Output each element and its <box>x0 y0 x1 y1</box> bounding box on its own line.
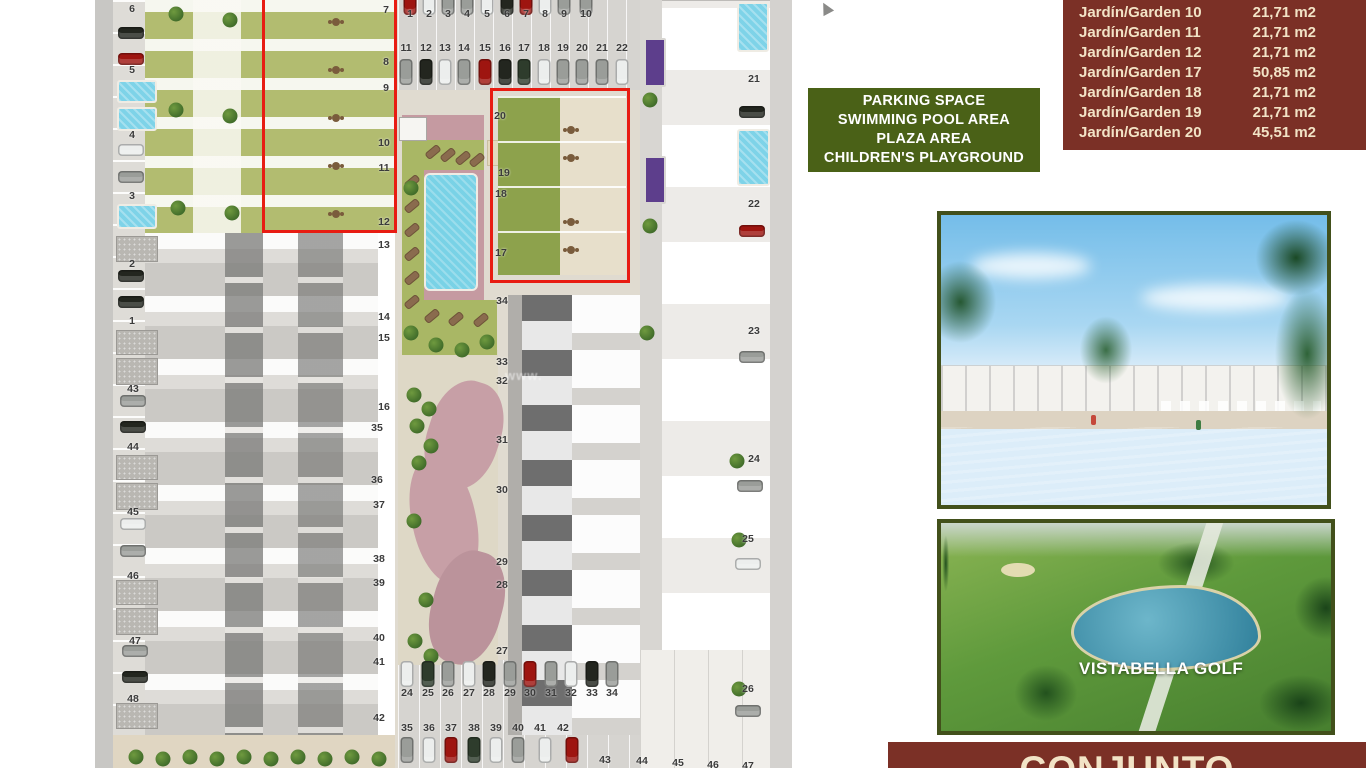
palm-tree-icon <box>937 245 1021 435</box>
car-icon <box>518 59 531 85</box>
plan-number-label: 24 <box>401 687 413 699</box>
plan-number-label: 16 <box>378 401 390 413</box>
amenity-label: SWIMMING POOL AREA <box>808 111 1040 130</box>
car-icon <box>586 661 599 687</box>
amenity-label: CHILDREN'S PLAYGROUND <box>808 149 1040 168</box>
garden-name: Jardín/Garden 19 <box>1079 104 1202 124</box>
plan-number-label: 20 <box>494 110 506 122</box>
golf-photo: VISTABELLA GOLF <box>937 519 1335 735</box>
plan-number-label: 41 <box>534 722 546 734</box>
palm-tree-icon <box>1212 211 1331 445</box>
parking-pad <box>116 608 158 635</box>
plan-number-label: 18 <box>538 42 550 54</box>
car-icon <box>442 661 455 687</box>
tree-icon <box>404 181 419 196</box>
banner-title: CONJUNTO RESIDENCIAL <box>888 751 1366 768</box>
tree-icon <box>372 752 387 767</box>
sand-bunker <box>1001 563 1035 577</box>
garden-area: 21,71 m2 <box>1253 24 1316 44</box>
north-arrow-icon <box>818 0 834 16</box>
plan-number-label: 15 <box>378 332 390 344</box>
plan-number-label: 43 <box>127 383 139 395</box>
pool-hut <box>399 117 427 141</box>
plan-number-label: 42 <box>373 712 385 724</box>
car-icon <box>739 106 765 118</box>
plan-number-label: 6 <box>129 3 135 15</box>
plan-number-label: 25 <box>742 533 754 545</box>
plan-number-label: 9 <box>383 82 389 94</box>
plan-number-label: 16 <box>499 42 511 54</box>
site-plan: 6543214344454647487891011121314151635363… <box>0 0 800 768</box>
plan-number-label: 14 <box>458 42 470 54</box>
plan-number-label: 28 <box>483 687 495 699</box>
tree-icon <box>412 456 427 471</box>
person-figure <box>1196 420 1201 430</box>
car-icon <box>439 59 452 85</box>
plan-number-label: 14 <box>378 311 390 323</box>
plan-number-label: 11 <box>400 42 411 54</box>
tree-icon <box>730 454 745 469</box>
plan-number-label: 18 <box>495 188 507 200</box>
plan-number-label: 22 <box>616 42 628 54</box>
car-icon <box>401 661 414 687</box>
plan-number-label: 17 <box>495 247 507 259</box>
plan-number-label: 25 <box>422 687 434 699</box>
car-icon <box>565 661 578 687</box>
plan-number-label: 45 <box>127 506 139 518</box>
terrace-table-icon <box>332 162 340 170</box>
residential-banner: CONJUNTO RESIDENCIAL <box>888 742 1366 768</box>
garden-name: Jardín/Garden 12 <box>1079 44 1202 64</box>
parking-pad <box>116 455 158 480</box>
building-column-a-courtyards <box>225 233 263 735</box>
car-icon <box>122 671 148 683</box>
plan-number-label: 45 <box>672 757 684 768</box>
plan-number-label: 35 <box>371 422 383 434</box>
plan-number-label: 29 <box>496 556 508 568</box>
plan-number-label: 21 <box>596 42 608 54</box>
tree-icon <box>429 338 444 353</box>
garden-table-row: Jardín/Garden 17 50,85 m2 <box>1063 64 1366 84</box>
tree-icon <box>643 93 658 108</box>
car-icon <box>422 661 435 687</box>
plan-number-label: 13 <box>439 42 451 54</box>
terrace-table-icon <box>332 114 340 122</box>
tree-icon <box>455 343 470 358</box>
car-icon <box>118 296 144 308</box>
garden-area: 50,85 m2 <box>1253 64 1316 84</box>
private-pool <box>737 129 770 186</box>
garden-name: Jardín/Garden 18 <box>1079 84 1202 104</box>
garden-area: 21,71 m2 <box>1253 104 1316 124</box>
car-icon <box>616 59 629 85</box>
tree-icon <box>424 439 439 454</box>
plan-number-label: 44 <box>636 755 648 767</box>
plan-number-label: 5 <box>484 8 490 20</box>
car-icon <box>401 737 414 763</box>
plan-number-label: 38 <box>373 553 385 565</box>
plan-number-label: 48 <box>127 693 139 705</box>
tree-icon <box>183 750 198 765</box>
golf-caption: VISTABELLA GOLF <box>1079 659 1243 679</box>
plan-number-label: 33 <box>586 687 598 699</box>
plan-number-label: 11 <box>378 162 389 174</box>
tree-icon <box>422 402 437 417</box>
plan-number-label: 20 <box>576 42 588 54</box>
car-icon <box>120 518 146 530</box>
plan-number-label: 31 <box>545 687 557 699</box>
tree-icon <box>129 750 144 765</box>
tree-icon <box>291 750 306 765</box>
plan-number-label: 10 <box>580 8 592 20</box>
garden-table-rows: Jardín/Garden 9 21,71 m2 Jardín/Garden 1… <box>1063 0 1366 150</box>
garden-table-row: Jardín/Garden 11 21,71 m2 <box>1063 24 1366 44</box>
highlight-outline-units-17-20 <box>490 88 630 283</box>
plan-number-label: 27 <box>463 687 475 699</box>
garden-name: Jardín/Garden 17 <box>1079 64 1202 84</box>
car-icon <box>118 270 144 282</box>
car-icon <box>504 661 517 687</box>
tree-icon <box>419 593 434 608</box>
car-icon <box>420 59 433 85</box>
plan-number-label: 36 <box>371 474 383 486</box>
garden-name: Jardín/Garden 20 <box>1079 124 1202 144</box>
tree-icon <box>407 514 422 529</box>
parking-pad <box>116 330 158 355</box>
parking-pad <box>116 236 158 262</box>
car-icon <box>737 480 763 492</box>
private-pool <box>737 2 769 52</box>
car-icon <box>458 59 471 85</box>
tree-icon <box>169 103 184 118</box>
terrace-table-icon <box>567 126 575 134</box>
plan-number-label: 22 <box>748 198 760 210</box>
garden-name: Jardín/Garden 10 <box>1079 4 1202 24</box>
car-icon <box>739 225 765 237</box>
plan-number-label: 21 <box>748 73 760 85</box>
community-swimming-pool <box>424 173 478 291</box>
plan-number-label: 36 <box>423 722 435 734</box>
plan-number-label: 37 <box>373 499 385 511</box>
plan-number-label: 41 <box>373 656 385 668</box>
plan-number-label: 31 <box>496 434 508 446</box>
plan-number-label: 1 <box>129 315 135 327</box>
tree-icon <box>410 419 425 434</box>
car-icon <box>557 59 570 85</box>
plan-number-label: 19 <box>557 42 569 54</box>
highlight-outline-units-7-12 <box>262 0 397 233</box>
plan-number-label: 35 <box>401 722 413 734</box>
plan-number-label: 30 <box>496 484 508 496</box>
car-icon <box>524 661 537 687</box>
terrace-table-icon <box>567 154 575 162</box>
plan-number-label: 46 <box>707 759 719 768</box>
plan-number-label: 8 <box>383 56 389 68</box>
terrace-table-icon <box>332 18 340 26</box>
garden-area-table: Jardín/Garden 9 21,71 m2 Jardín/Garden 1… <box>1063 0 1366 150</box>
car-icon <box>490 737 503 763</box>
tree-icon <box>640 326 655 341</box>
parking-pad <box>116 358 158 385</box>
car-icon <box>463 661 476 687</box>
plan-number-label: 30 <box>524 687 536 699</box>
car-icon <box>120 421 146 433</box>
garden-table-row: Jardín/Garden 18 21,71 m2 <box>1063 84 1366 104</box>
plan-number-label: 3 <box>445 8 451 20</box>
tree-icon <box>169 7 184 22</box>
plan-number-label: 40 <box>512 722 524 734</box>
private-pool <box>117 80 157 103</box>
garden-area: 21,71 m2 <box>1253 44 1316 64</box>
plan-number-label: 10 <box>378 137 390 149</box>
garden-table-row: Jardín/Garden 20 45,51 m2 <box>1063 124 1366 144</box>
car-icon <box>545 661 558 687</box>
plan-number-label: 39 <box>490 722 502 734</box>
plan-number-label: 4 <box>464 8 470 20</box>
plan-number-label: 5 <box>129 64 135 76</box>
plan-number-label: 47 <box>742 760 754 768</box>
amenities-box: PARKING SPACESWIMMING POOL AREAPLAZA ARE… <box>808 88 1040 172</box>
car-icon <box>596 59 609 85</box>
road-far-right <box>770 0 792 768</box>
tree-icon <box>237 750 252 765</box>
tree-icon <box>223 13 238 28</box>
building-column-b-courtyards <box>298 233 343 735</box>
car-icon <box>400 59 413 85</box>
amenities-lines: PARKING SPACESWIMMING POOL AREAPLAZA ARE… <box>808 92 1040 168</box>
plan-number-label: 26 <box>742 683 754 695</box>
plan-number-label: 23 <box>748 325 760 337</box>
tree-icon <box>407 388 422 403</box>
plan-number-label: 24 <box>748 453 760 465</box>
plan-number-label: 13 <box>378 239 390 251</box>
plan-number-label: 46 <box>127 570 139 582</box>
private-pool <box>117 107 157 131</box>
plan-number-label: 2 <box>129 258 135 270</box>
amenity-label: PARKING SPACE <box>808 92 1040 111</box>
car-icon <box>118 144 144 156</box>
plan-number-label: 34 <box>496 295 508 307</box>
car-icon <box>483 661 496 687</box>
plan-number-label: 43 <box>599 754 611 766</box>
tree-icon <box>156 752 171 767</box>
purple-pool <box>644 38 666 87</box>
plan-number-label: 7 <box>523 8 529 20</box>
person-figure <box>1091 415 1096 425</box>
road-left <box>95 0 113 768</box>
parking-pad <box>116 580 158 605</box>
plan-number-label: 7 <box>383 4 389 16</box>
plan-number-label: 4 <box>129 129 135 141</box>
screenshot-root: 6543214344454647487891011121314151635363… <box>0 0 1366 768</box>
plan-number-label: 27 <box>496 645 508 657</box>
plan-number-label: 38 <box>468 722 480 734</box>
car-icon <box>576 59 589 85</box>
terrace-table-icon <box>567 218 575 226</box>
terrace-table-icon <box>567 246 575 254</box>
tree-icon <box>404 326 419 341</box>
car-icon <box>735 705 761 717</box>
car-icon <box>538 59 551 85</box>
garden-name: Jardín/Garden 11 <box>1079 24 1201 44</box>
car-icon <box>423 737 436 763</box>
tree-icon <box>345 750 360 765</box>
car-icon <box>468 737 481 763</box>
plan-number-label: 26 <box>442 687 454 699</box>
plan-number-label: 32 <box>565 687 577 699</box>
purple-pool <box>644 156 666 204</box>
car-icon <box>566 737 579 763</box>
amenity-label: PLAZA AREA <box>808 130 1040 149</box>
car-icon <box>120 545 146 557</box>
tree-icon <box>318 752 333 767</box>
car-icon <box>120 395 146 407</box>
tree-icon <box>264 752 279 767</box>
garden-area: 21,71 m2 <box>1253 4 1316 24</box>
plan-number-label: 33 <box>496 356 508 368</box>
terrace-table-icon <box>332 66 340 74</box>
car-icon <box>606 661 619 687</box>
car-icon <box>445 737 458 763</box>
tree-icon <box>223 109 238 124</box>
car-icon <box>118 27 144 39</box>
car-icon <box>118 171 144 183</box>
garden-table-row: Jardín/Garden 12 21,71 m2 <box>1063 44 1366 64</box>
garden-area: 45,51 m2 <box>1253 124 1316 144</box>
plan-number-label: 19 <box>498 167 510 179</box>
tree-icon <box>480 335 495 350</box>
plan-number-label: 9 <box>561 8 567 20</box>
plan-number-label: 47 <box>129 635 141 647</box>
tree-icon <box>225 206 240 221</box>
tree-icon <box>643 219 658 234</box>
car-icon <box>739 351 765 363</box>
pool-render-photo <box>937 211 1331 509</box>
plan-number-label: 39 <box>373 577 385 589</box>
parking-pad <box>116 703 158 729</box>
car-icon <box>539 737 552 763</box>
plan-number-label: 28 <box>496 579 508 591</box>
garden-area: 21,71 m2 <box>1253 84 1316 104</box>
garden-table-row: Jardín/Garden 19 21,71 m2 <box>1063 104 1366 124</box>
plan-number-label: 12 <box>420 42 432 54</box>
plan-number-label: 3 <box>129 190 135 202</box>
plan-number-label: 37 <box>445 722 457 734</box>
watermark: www. <box>505 368 665 383</box>
tree-icon <box>171 201 186 216</box>
plan-number-label: 2 <box>426 8 432 20</box>
car-icon <box>479 59 492 85</box>
car-icon <box>512 737 525 763</box>
plan-number-label: 8 <box>542 8 548 20</box>
plan-number-label: 34 <box>606 687 618 699</box>
private-pool <box>117 204 157 229</box>
plan-number-label: 29 <box>504 687 516 699</box>
plan-number-label: 44 <box>127 441 139 453</box>
car-icon <box>735 558 761 570</box>
garden-table-row: Jardín/Garden 10 21,71 m2 <box>1063 4 1366 24</box>
palm-tree-icon <box>1071 305 1141 395</box>
plan-number-label: 6 <box>504 8 510 20</box>
tree-icon <box>408 634 423 649</box>
terrace-table-icon <box>332 210 340 218</box>
plan-number-label: 1 <box>407 8 413 20</box>
plan-number-label: 12 <box>378 216 390 228</box>
car-icon <box>499 59 512 85</box>
plan-number-label: 40 <box>373 632 385 644</box>
plan-number-label: 15 <box>479 42 491 54</box>
tree-icon <box>210 752 225 767</box>
plan-number-label: 17 <box>518 42 530 54</box>
plan-number-label: 42 <box>557 722 569 734</box>
